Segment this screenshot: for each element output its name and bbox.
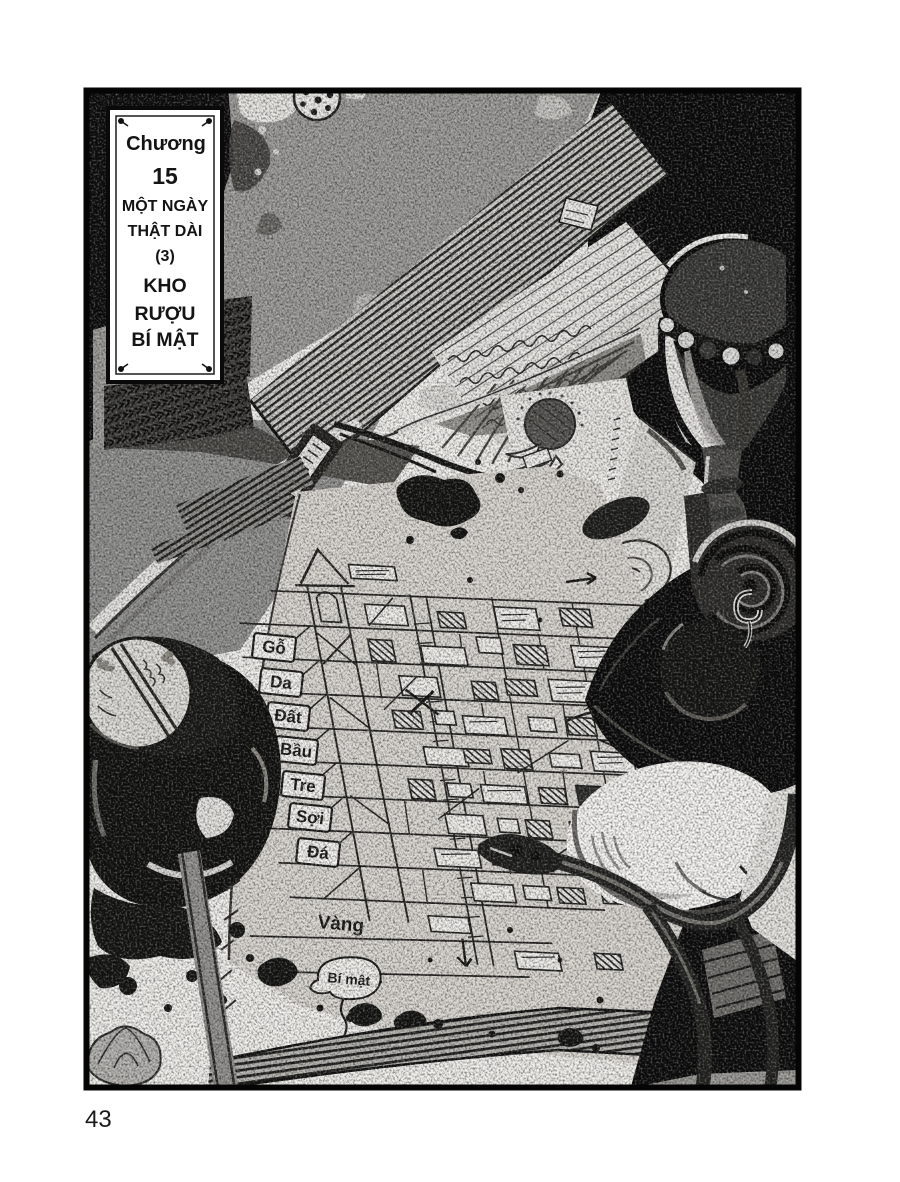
svg-text:(3): (3): [155, 248, 175, 265]
svg-text:Chương: Chương: [126, 133, 206, 155]
svg-text:43: 43: [85, 1106, 112, 1133]
svg-text:KHO: KHO: [143, 275, 186, 297]
svg-text:RƯỢU: RƯỢU: [135, 303, 196, 325]
svg-text:BÍ MẬT: BÍ MẬT: [131, 327, 198, 351]
svg-text:MỘT NGÀY: MỘT NGÀY: [122, 196, 209, 215]
svg-text:15: 15: [152, 163, 178, 189]
svg-text:THẬT DÀI: THẬT DÀI: [128, 221, 203, 240]
